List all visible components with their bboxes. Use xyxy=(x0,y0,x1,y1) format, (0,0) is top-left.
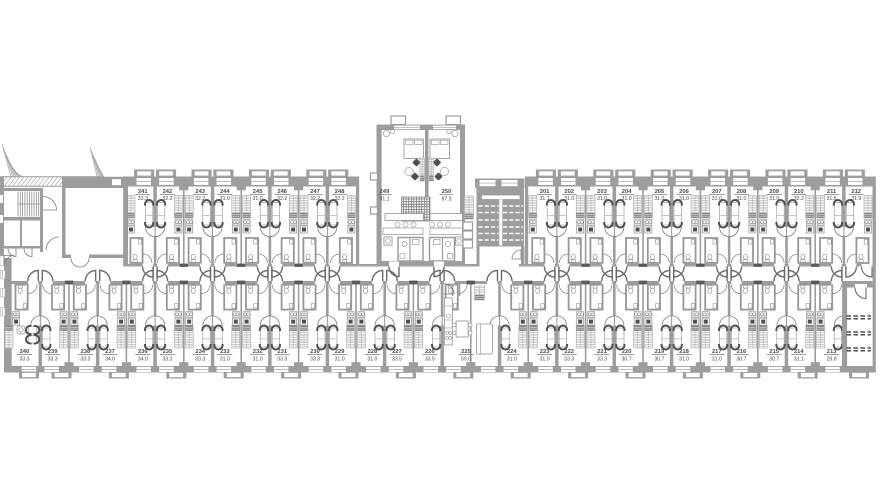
svg-text:31.0: 31.0 xyxy=(367,356,377,362)
svg-text:31.0: 31.0 xyxy=(220,356,230,362)
svg-text:59.0: 59.0 xyxy=(461,356,471,362)
svg-text:244: 244 xyxy=(220,189,230,195)
svg-text:31.1: 31.1 xyxy=(794,356,804,362)
svg-text:30.7: 30.7 xyxy=(622,356,632,362)
svg-text:208: 208 xyxy=(737,189,747,195)
svg-text:91.1: 91.1 xyxy=(379,197,389,203)
svg-text:239: 239 xyxy=(48,349,58,355)
svg-text:224: 224 xyxy=(507,349,517,355)
svg-text:31.0: 31.0 xyxy=(540,356,550,362)
svg-text:218: 218 xyxy=(679,349,689,355)
svg-text:28.8: 28.8 xyxy=(827,356,837,362)
svg-text:34.0: 34.0 xyxy=(138,356,148,362)
svg-text:217: 217 xyxy=(712,349,722,355)
svg-text:31.0: 31.0 xyxy=(335,356,345,362)
svg-text:204: 204 xyxy=(622,189,632,195)
svg-text:235: 235 xyxy=(163,349,173,355)
svg-text:33.5: 33.5 xyxy=(425,356,435,362)
svg-text:248: 248 xyxy=(335,189,345,195)
svg-text:247: 247 xyxy=(310,189,320,195)
svg-text:220: 220 xyxy=(622,349,632,355)
svg-text:246: 246 xyxy=(277,189,287,195)
svg-text:206: 206 xyxy=(679,189,689,195)
svg-text:211: 211 xyxy=(827,189,837,195)
svg-text:202: 202 xyxy=(564,189,574,195)
svg-text:231: 231 xyxy=(277,349,287,355)
svg-text:240: 240 xyxy=(20,349,30,355)
svg-text:212: 212 xyxy=(851,189,861,195)
svg-text:33.3: 33.3 xyxy=(195,356,205,362)
svg-text:33.3: 33.3 xyxy=(162,356,172,362)
svg-text:33.5: 33.5 xyxy=(392,356,402,362)
svg-text:233: 233 xyxy=(220,349,230,355)
svg-text:222: 222 xyxy=(564,349,574,355)
svg-text:31.0: 31.0 xyxy=(712,356,722,362)
svg-text:249: 249 xyxy=(380,189,390,195)
svg-text:30.7: 30.7 xyxy=(736,356,746,362)
svg-text:229: 229 xyxy=(335,349,345,355)
svg-text:87.3: 87.3 xyxy=(441,197,451,203)
svg-text:33.3: 33.3 xyxy=(48,356,58,362)
svg-text:31.0: 31.0 xyxy=(679,356,689,362)
svg-text:33.3: 33.3 xyxy=(564,356,574,362)
svg-text:210: 210 xyxy=(794,189,804,195)
svg-text:216: 216 xyxy=(737,349,747,355)
svg-text:31.0: 31.0 xyxy=(253,356,263,362)
svg-text:203: 203 xyxy=(597,189,607,195)
svg-text:205: 205 xyxy=(655,189,665,195)
svg-text:241: 241 xyxy=(138,189,148,195)
svg-text:227: 227 xyxy=(392,349,402,355)
svg-text:34.0: 34.0 xyxy=(105,356,115,362)
svg-text:225: 225 xyxy=(461,349,471,355)
svg-text:31.0: 31.0 xyxy=(507,356,517,362)
svg-text:230: 230 xyxy=(310,349,320,355)
svg-text:33.3: 33.3 xyxy=(19,356,29,362)
svg-text:232: 232 xyxy=(253,349,263,355)
svg-text:33.3: 33.3 xyxy=(310,356,320,362)
svg-text:33.3: 33.3 xyxy=(597,356,607,362)
svg-text:214: 214 xyxy=(794,349,804,355)
svg-text:33.3: 33.3 xyxy=(80,356,90,362)
svg-text:207: 207 xyxy=(712,189,722,195)
svg-text:245: 245 xyxy=(253,189,263,195)
svg-text:201: 201 xyxy=(540,189,550,195)
svg-text:250: 250 xyxy=(442,189,452,195)
svg-text:243: 243 xyxy=(195,189,205,195)
svg-text:30.7: 30.7 xyxy=(769,356,779,362)
svg-text:209: 209 xyxy=(769,189,779,195)
svg-text:33.3: 33.3 xyxy=(277,356,287,362)
svg-text:242: 242 xyxy=(163,189,173,195)
svg-text:237: 237 xyxy=(105,349,115,355)
svg-text:30.7: 30.7 xyxy=(654,356,664,362)
